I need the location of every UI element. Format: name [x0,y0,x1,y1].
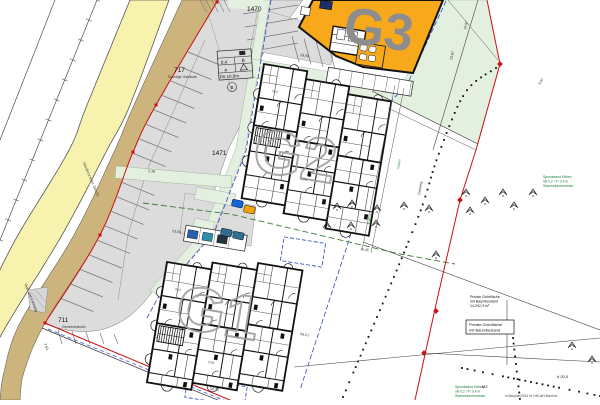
svg-text:1471: 1471 [212,150,227,157]
svg-text:717: 717 [174,67,185,74]
svg-text:G2: G2 [249,116,342,198]
svg-text:56,71: 56,71 [210,387,219,392]
svg-text:2,39: 2,39 [148,169,155,174]
svg-text:1470: 1470 [247,6,262,13]
svg-text:B: B [230,85,233,90]
svg-text:nB 0,2 / P: 0,4 m: nB 0,2 / P: 0,4 m [543,180,568,184]
svg-text:B: B [242,58,245,63]
svg-text:mit Baumbestand: mit Baumbestand [470,300,498,304]
svg-text:Gemeindestraße: Gemeindestraße [62,325,86,329]
svg-text:Spundwand Klären: Spundwand Klären [455,385,484,389]
svg-text:G1: G1 [172,273,265,355]
svg-text:7,61: 7,61 [43,343,49,351]
svg-text:58,21: 58,21 [300,332,310,337]
svg-text:# 20,0: # 20,0 [557,374,569,379]
svg-text:nB 0,2 / P: 0,4 m: nB 0,2 / P: 0,4 m [455,390,480,394]
svg-text:Gehweg: Gehweg [417,181,423,195]
svg-text:mit Baumbestand: mit Baumbestand [469,328,500,333]
svg-text:711: 711 [58,317,69,324]
svg-text:Sonstige Gebäude: Sonstige Gebäude [168,75,197,79]
svg-text:Stammdurchmesser: Stammdurchmesser [455,394,486,398]
svg-text:M2: M2 [482,384,488,389]
svg-text:In Bauplan/2024 M: HKLd/H Born: In Bauplan/2024 M: HKLd/H Bornhöv [505,394,558,398]
svg-text:0,4: 0,4 [221,60,228,65]
svg-text:11,46: 11,46 [360,247,369,252]
svg-text:Spundwand Klären: Spundwand Klären [543,175,572,179]
svg-text:Stammdurchmesser: Stammdurchmesser [543,184,574,188]
svg-text:Private Grünfläche: Private Grünfläche [470,295,500,299]
svg-text:Garten: Garten [396,159,402,170]
svg-text:Private Grünfläche: Private Grünfläche [469,322,503,327]
svg-text:14.292,3 m²: 14.292,3 m² [470,304,490,308]
svg-text:G3: G3 [340,0,417,64]
svg-text:9,47: 9,47 [537,77,544,85]
